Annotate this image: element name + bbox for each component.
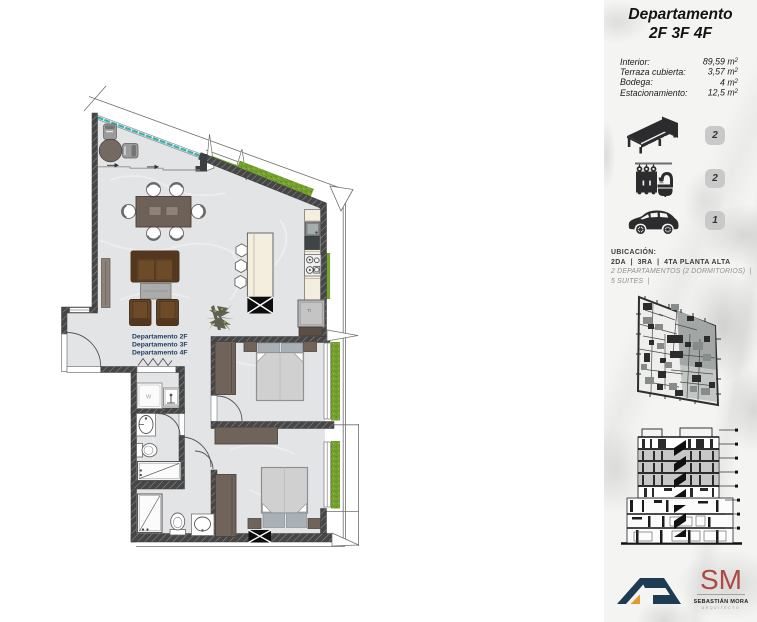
svg-text:Departamento 3F: Departamento 3F <box>132 342 188 349</box>
svg-text:SM: SM <box>700 564 742 595</box>
svg-text:Departamento 4F: Departamento 4F <box>132 350 188 357</box>
svg-text:TI: TI <box>307 308 311 313</box>
svg-text:Departamento 2F: Departamento 2F <box>132 334 188 341</box>
svg-text:W: W <box>146 395 152 401</box>
svg-text:SEBASTIÁN MORA: SEBASTIÁN MORA <box>694 598 749 605</box>
svg-text:ARQUITECTO: ARQUITECTO <box>702 606 740 610</box>
